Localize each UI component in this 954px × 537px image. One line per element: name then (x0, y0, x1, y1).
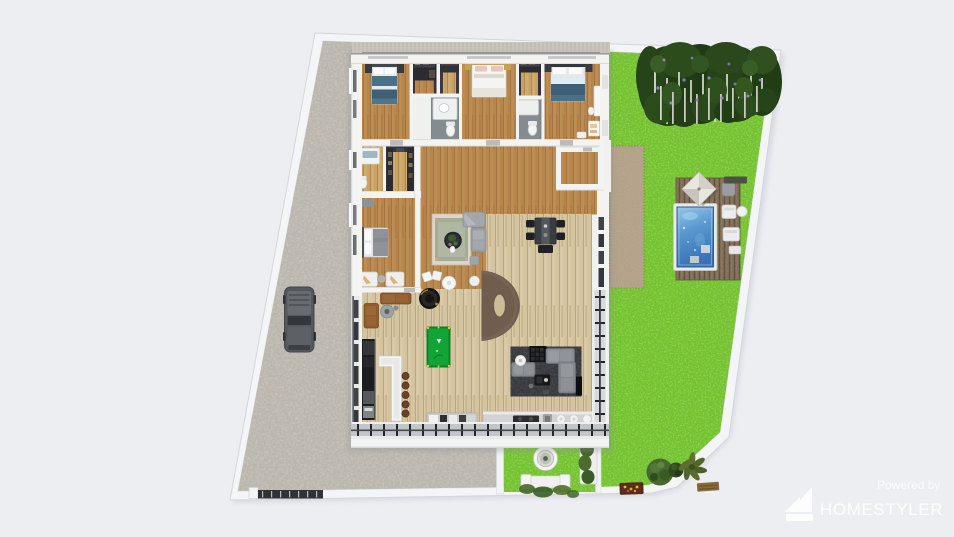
svg-text:Powered by: Powered by (877, 478, 940, 492)
svg-text:HOMESTYLER: HOMESTYLER (820, 500, 943, 519)
